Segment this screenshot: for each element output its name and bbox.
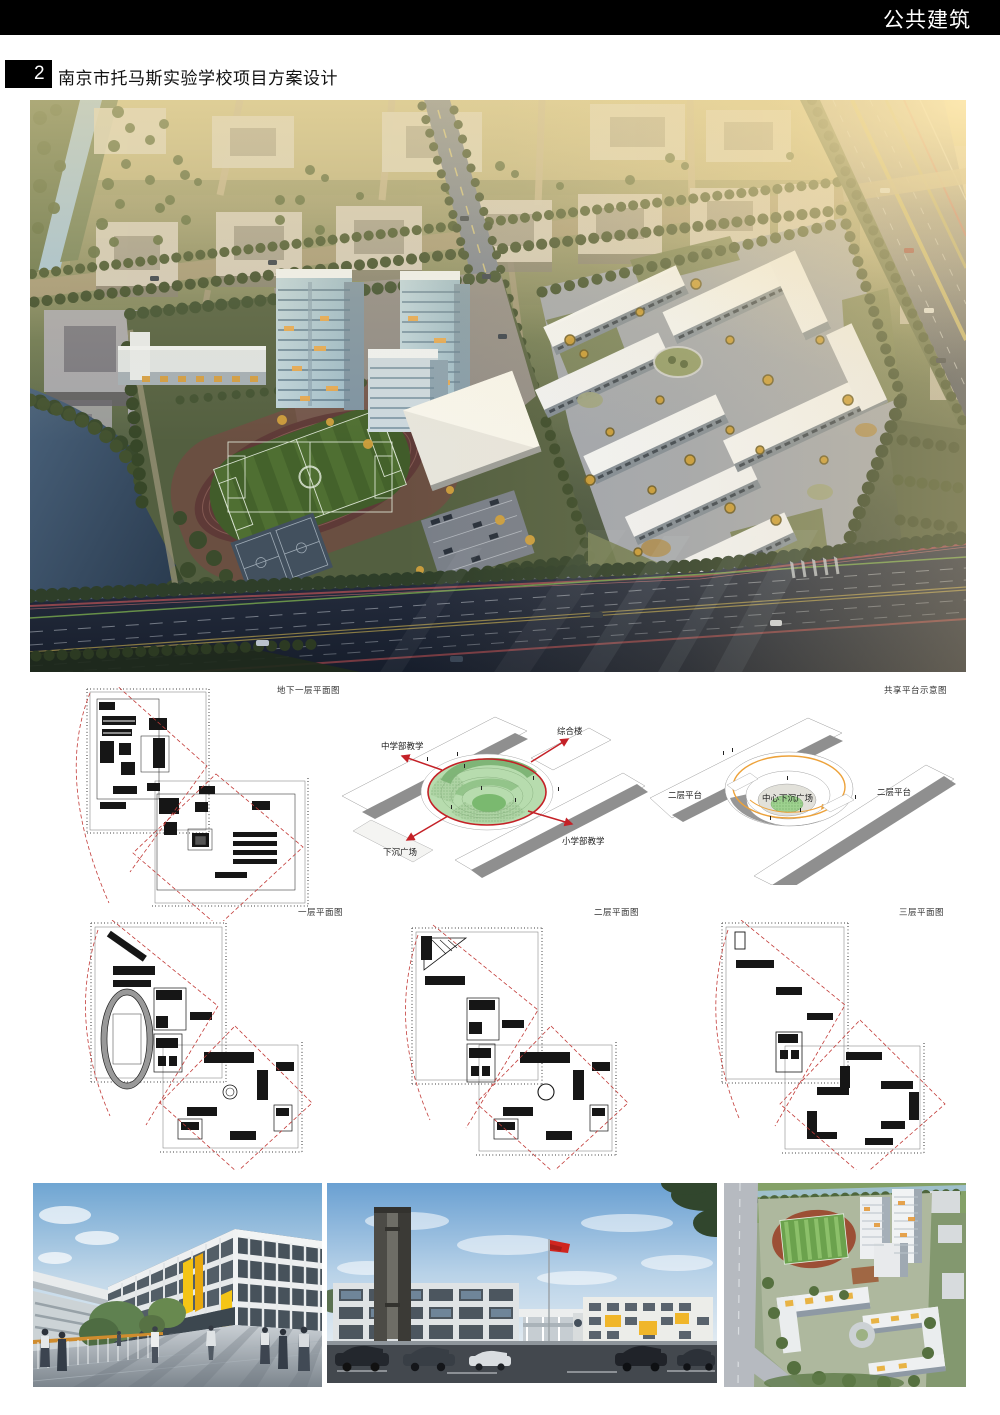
svg-text:二层平台: 二层平台: [877, 787, 911, 797]
svg-text:小学部教学: 小学部教学: [562, 836, 605, 846]
svg-text:中学部教学: 中学部教学: [381, 741, 424, 751]
svg-text:综合楼: 综合楼: [557, 726, 583, 736]
svg-text:中心下沉广场: 中心下沉广场: [762, 793, 813, 803]
svg-text:下沉广场: 下沉广场: [383, 847, 417, 857]
svg-text:二层平台: 二层平台: [668, 790, 702, 800]
